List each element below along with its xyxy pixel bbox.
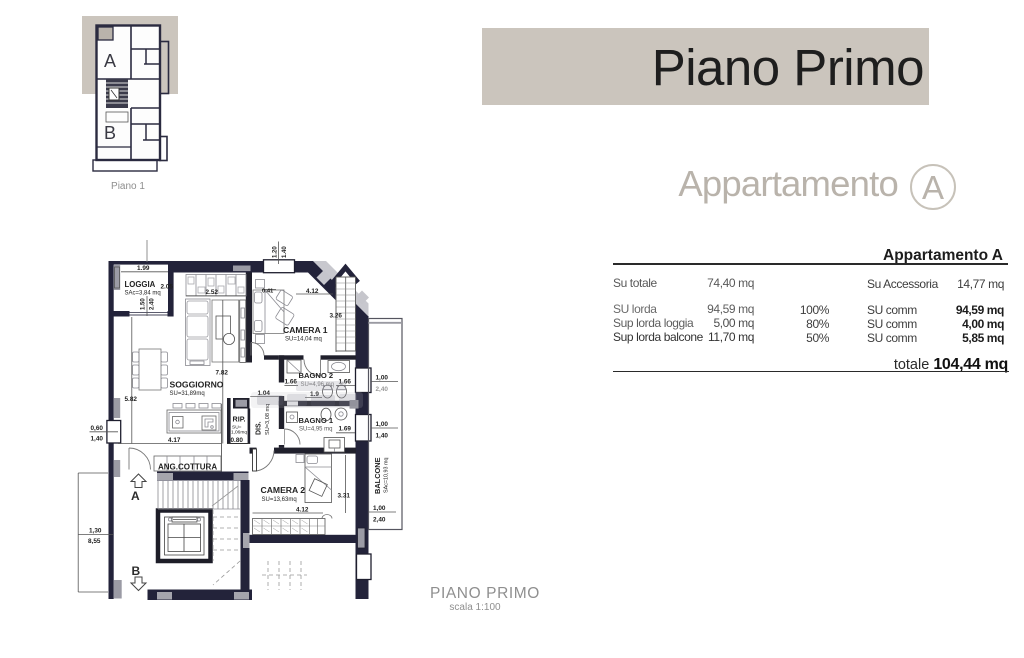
svg-text:1.20: 1.20 [273, 246, 279, 258]
svg-text:1,40: 1,40 [91, 436, 104, 443]
svg-text:BAGNO 1: BAGNO 1 [299, 416, 334, 425]
svg-text:SAc=3,84 mq: SAc=3,84 mq [125, 291, 161, 297]
svg-text:CAMERA 1: CAMERA 1 [283, 325, 328, 335]
svg-text:B: B [132, 564, 141, 578]
svg-text:LOGGIA: LOGGIA [125, 280, 156, 289]
svg-text:SU=31,89mq: SU=31,89mq [170, 391, 205, 397]
svg-text:1.40: 1.40 [282, 246, 288, 258]
svg-text:3.31: 3.31 [338, 493, 351, 500]
svg-text:SU=4,95 mq: SU=4,95 mq [299, 427, 333, 433]
svg-text:SU=3,08 mq: SU=3,08 mq [265, 404, 271, 435]
svg-text:0.41: 0.41 [262, 288, 274, 294]
svg-text:1,06mq: 1,06mq [231, 430, 247, 436]
svg-text:0,60: 0,60 [91, 425, 104, 432]
svg-text:2,40: 2,40 [373, 517, 386, 524]
svg-text:1,30: 1,30 [89, 528, 102, 535]
svg-text:1.50: 1.50 [141, 298, 147, 310]
svg-text:1,40: 1,40 [376, 433, 389, 440]
svg-text:ANG.COTTURA: ANG.COTTURA [158, 463, 217, 472]
svg-text:RIP.: RIP. [233, 415, 246, 424]
svg-text:A: A [131, 489, 140, 503]
svg-text:4.17: 4.17 [168, 437, 181, 444]
svg-text:2,40: 2,40 [376, 386, 389, 393]
svg-text:SU=13,63mq: SU=13,63mq [262, 497, 297, 503]
svg-text:4.12: 4.12 [306, 288, 319, 295]
svg-text:BAGNO 2: BAGNO 2 [299, 371, 334, 380]
svg-text:1,00: 1,00 [376, 421, 389, 428]
svg-text:2.40: 2.40 [150, 298, 156, 310]
svg-text:SOGGIORNO: SOGGIORNO [170, 380, 224, 390]
svg-text:1.99: 1.99 [137, 265, 150, 272]
svg-text:8,55: 8,55 [88, 538, 101, 545]
svg-text:2.52: 2.52 [206, 289, 219, 296]
svg-text:1.66: 1.66 [285, 379, 298, 386]
svg-text:7.82: 7.82 [216, 370, 229, 377]
svg-text:CAMERA 2: CAMERA 2 [261, 485, 306, 495]
svg-text:BALCONE: BALCONE [373, 457, 382, 494]
svg-text:1,00: 1,00 [376, 375, 389, 382]
svg-text:DIS.: DIS. [256, 421, 263, 435]
svg-text:SU=14,04 mq: SU=14,04 mq [285, 337, 322, 343]
svg-text:4.12: 4.12 [296, 507, 309, 514]
svg-text:0.80: 0.80 [231, 437, 244, 444]
svg-text:3.26: 3.26 [330, 313, 343, 320]
svg-text:5.82: 5.82 [125, 396, 138, 403]
svg-text:1.69: 1.69 [339, 426, 352, 433]
svg-text:1,00: 1,00 [373, 505, 386, 512]
svg-text:A: A [104, 51, 116, 71]
svg-text:SAc=10,93 mq: SAc=10,93 mq [384, 457, 390, 493]
svg-text:2.05: 2.05 [161, 284, 174, 291]
svg-text:B: B [104, 123, 116, 143]
